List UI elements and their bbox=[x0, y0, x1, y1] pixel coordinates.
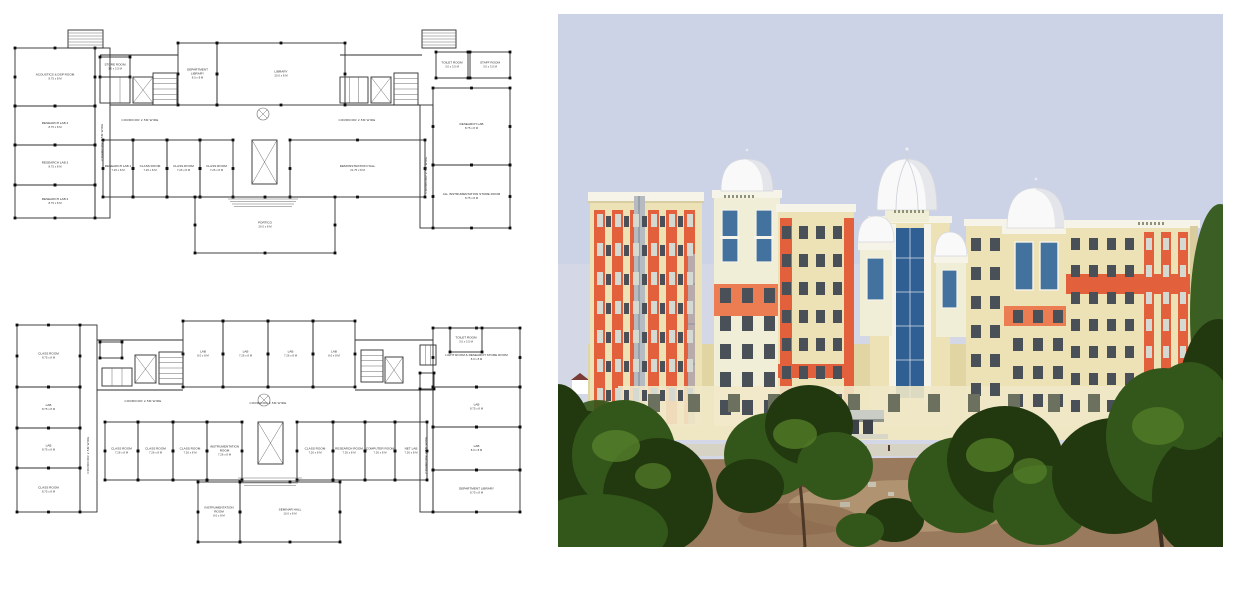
column bbox=[433, 388, 436, 391]
column bbox=[216, 42, 219, 45]
column bbox=[102, 196, 105, 199]
column bbox=[354, 386, 357, 389]
window bbox=[1150, 222, 1152, 225]
window bbox=[1107, 346, 1116, 358]
plan-text: 7.26 x 8 M bbox=[149, 450, 163, 454]
window bbox=[816, 366, 825, 379]
window bbox=[764, 372, 775, 387]
toilets bbox=[340, 77, 368, 103]
window bbox=[678, 390, 683, 401]
plan-text: 8.0 x 8 M bbox=[213, 513, 225, 517]
window bbox=[898, 210, 900, 213]
plan-text: 21.75 x 8 M bbox=[350, 168, 365, 172]
column bbox=[509, 125, 512, 128]
window bbox=[1162, 222, 1164, 225]
column bbox=[94, 144, 97, 147]
window bbox=[633, 330, 639, 343]
column bbox=[470, 227, 473, 230]
window bbox=[624, 332, 629, 343]
plan-text: 3.0 x 3.5 M bbox=[108, 66, 123, 70]
column bbox=[199, 167, 202, 170]
column bbox=[475, 469, 478, 472]
window bbox=[990, 383, 1000, 396]
column bbox=[435, 51, 438, 54]
window bbox=[1107, 319, 1116, 331]
plan-text: 3.0 x 3.5 M bbox=[459, 339, 474, 343]
column bbox=[47, 386, 50, 389]
window bbox=[1053, 310, 1063, 323]
column bbox=[137, 479, 140, 482]
window bbox=[1125, 346, 1134, 358]
plan-text: 8.0 x 8 M bbox=[471, 448, 483, 452]
column bbox=[394, 421, 397, 424]
column bbox=[470, 164, 473, 167]
plan-text: CORRIDOR 2.5M WIDE bbox=[424, 156, 428, 193]
column bbox=[197, 481, 200, 484]
window bbox=[660, 332, 665, 343]
column bbox=[312, 353, 315, 356]
column bbox=[334, 224, 337, 227]
column bbox=[296, 450, 299, 453]
window bbox=[728, 394, 740, 412]
window bbox=[1071, 346, 1080, 358]
column bbox=[432, 195, 435, 198]
column bbox=[432, 125, 435, 128]
window bbox=[1125, 238, 1134, 250]
window bbox=[669, 214, 675, 227]
column bbox=[356, 139, 359, 142]
column bbox=[470, 87, 473, 90]
column bbox=[481, 351, 484, 354]
window bbox=[720, 288, 731, 303]
plan-text: 8.75 x 8 M bbox=[48, 125, 62, 129]
column bbox=[94, 105, 97, 108]
window bbox=[615, 243, 621, 256]
window bbox=[1033, 338, 1043, 351]
window bbox=[990, 267, 1000, 280]
window bbox=[606, 274, 611, 285]
column bbox=[79, 427, 82, 430]
plan-text: 7.26 x 8 M bbox=[115, 450, 129, 454]
column bbox=[222, 353, 225, 356]
column bbox=[334, 252, 337, 255]
window bbox=[660, 216, 665, 227]
column bbox=[121, 357, 124, 360]
column bbox=[54, 47, 57, 50]
column bbox=[432, 327, 435, 330]
column bbox=[99, 341, 102, 344]
column bbox=[435, 77, 438, 80]
column bbox=[509, 227, 512, 230]
plan-text: CORRIDOR 2.5M WIDE bbox=[86, 436, 90, 473]
column bbox=[509, 77, 512, 80]
window bbox=[782, 282, 791, 295]
column bbox=[519, 356, 522, 359]
window bbox=[816, 310, 825, 323]
window bbox=[606, 216, 611, 227]
plan-text: CORRIDOR 2.5M WIDE bbox=[424, 436, 428, 473]
column bbox=[79, 355, 82, 358]
column bbox=[426, 479, 429, 482]
window bbox=[833, 254, 842, 267]
window bbox=[1146, 222, 1148, 225]
window bbox=[1125, 292, 1134, 304]
window bbox=[1180, 265, 1186, 277]
column bbox=[194, 224, 197, 227]
column bbox=[132, 196, 135, 199]
plan-text: CORRIDOR 2.5M WIDE bbox=[249, 401, 286, 405]
window bbox=[669, 272, 675, 285]
plan-text: 3.0 x 3.5 M bbox=[445, 64, 460, 68]
column bbox=[79, 467, 82, 470]
window bbox=[687, 330, 693, 343]
column bbox=[172, 450, 175, 453]
window bbox=[1180, 238, 1186, 250]
plan-text: 7.26 x 8 M bbox=[239, 353, 253, 357]
window bbox=[615, 359, 621, 372]
plan-text: 8.75 x 8 M bbox=[42, 355, 56, 359]
plan-text: 8.75 x 8 M bbox=[42, 489, 56, 493]
window bbox=[633, 214, 639, 227]
column bbox=[16, 324, 19, 327]
window bbox=[748, 195, 750, 198]
column bbox=[432, 426, 435, 429]
window bbox=[1125, 319, 1134, 331]
column bbox=[14, 184, 17, 187]
plan-text: 20.0 x 8 M bbox=[258, 224, 272, 228]
column bbox=[16, 355, 19, 358]
window bbox=[990, 238, 1000, 251]
window bbox=[651, 330, 657, 343]
window bbox=[816, 226, 825, 239]
window bbox=[669, 301, 675, 314]
room bbox=[100, 342, 122, 358]
column bbox=[344, 42, 347, 45]
plan-text: 7.26 x 8 M bbox=[284, 353, 298, 357]
plan-text: 7.26 x 8 M bbox=[183, 450, 197, 454]
window bbox=[633, 272, 639, 285]
column bbox=[519, 469, 522, 472]
window bbox=[597, 214, 603, 227]
column bbox=[206, 421, 209, 424]
column bbox=[509, 164, 512, 167]
column bbox=[197, 541, 200, 544]
window bbox=[742, 372, 753, 387]
window bbox=[678, 332, 683, 343]
window bbox=[606, 245, 611, 256]
window bbox=[764, 344, 775, 359]
column bbox=[199, 139, 202, 142]
window bbox=[660, 274, 665, 285]
window bbox=[651, 359, 657, 372]
window bbox=[1071, 265, 1080, 277]
window bbox=[1146, 265, 1152, 277]
column bbox=[14, 47, 17, 50]
window bbox=[669, 359, 675, 372]
window bbox=[799, 310, 808, 323]
first-floor-plan: ACOUSTICS & DSP ROOM8.75 x 8 MRESEARCH L… bbox=[14, 30, 512, 254]
column bbox=[129, 56, 132, 59]
column bbox=[394, 479, 397, 482]
column bbox=[296, 421, 299, 424]
plan-text: 8.0 x 8 M bbox=[328, 353, 340, 357]
window bbox=[906, 210, 908, 213]
plan-text: 7.26 x 8 M bbox=[111, 168, 125, 172]
window bbox=[752, 195, 754, 198]
column bbox=[16, 386, 19, 389]
plan-text: 8.0 x 8 M bbox=[197, 353, 209, 357]
column bbox=[267, 353, 270, 356]
window bbox=[1071, 238, 1080, 250]
column bbox=[194, 196, 197, 199]
column bbox=[334, 196, 337, 199]
window bbox=[642, 332, 647, 343]
window bbox=[1107, 265, 1116, 277]
window bbox=[615, 272, 621, 285]
column bbox=[432, 87, 435, 90]
window bbox=[597, 359, 603, 372]
window bbox=[1071, 319, 1080, 331]
window bbox=[669, 388, 675, 401]
window bbox=[833, 366, 842, 379]
window bbox=[678, 303, 683, 314]
window bbox=[990, 296, 1000, 309]
window bbox=[669, 330, 675, 343]
column bbox=[54, 144, 57, 147]
window bbox=[624, 361, 629, 372]
column bbox=[232, 139, 235, 142]
window bbox=[651, 214, 657, 227]
window bbox=[888, 394, 900, 412]
column bbox=[289, 139, 292, 142]
column bbox=[475, 511, 478, 514]
window bbox=[1146, 238, 1152, 250]
window bbox=[597, 330, 603, 343]
window bbox=[624, 303, 629, 314]
plan-text: 8.75 x 8 M bbox=[48, 201, 62, 205]
window bbox=[624, 274, 629, 285]
window bbox=[615, 214, 621, 227]
window bbox=[1033, 366, 1043, 379]
window bbox=[922, 210, 924, 213]
column bbox=[182, 386, 185, 389]
window bbox=[1180, 319, 1186, 331]
column bbox=[289, 167, 292, 170]
column bbox=[104, 450, 107, 453]
window bbox=[971, 325, 981, 338]
column bbox=[332, 479, 335, 482]
window bbox=[742, 288, 753, 303]
window bbox=[799, 366, 808, 379]
column bbox=[354, 353, 357, 356]
plan-text: 8.75 x 8 M bbox=[42, 407, 56, 411]
column bbox=[432, 469, 435, 472]
column bbox=[172, 421, 175, 424]
window bbox=[651, 243, 657, 256]
window bbox=[606, 361, 611, 372]
column bbox=[339, 481, 342, 484]
window bbox=[1146, 319, 1152, 331]
window bbox=[968, 394, 980, 412]
column bbox=[264, 252, 267, 255]
column bbox=[339, 541, 342, 544]
window bbox=[615, 388, 621, 401]
column bbox=[469, 77, 472, 80]
window bbox=[816, 254, 825, 267]
column bbox=[339, 511, 342, 514]
column bbox=[79, 324, 82, 327]
column bbox=[177, 42, 180, 45]
window bbox=[971, 267, 981, 280]
window bbox=[1107, 238, 1116, 250]
window bbox=[990, 354, 1000, 367]
column bbox=[312, 320, 315, 323]
window bbox=[687, 214, 693, 227]
column bbox=[47, 324, 50, 327]
column bbox=[239, 541, 242, 544]
window bbox=[1138, 222, 1140, 225]
window bbox=[1163, 319, 1169, 331]
column bbox=[79, 511, 82, 514]
window bbox=[1089, 373, 1098, 385]
column bbox=[166, 167, 169, 170]
window bbox=[724, 195, 726, 198]
column bbox=[121, 341, 124, 344]
column bbox=[509, 195, 512, 198]
window bbox=[687, 243, 693, 256]
window bbox=[633, 388, 639, 401]
column bbox=[197, 511, 200, 514]
window bbox=[1163, 292, 1169, 304]
toilets bbox=[100, 77, 130, 103]
window bbox=[1013, 338, 1023, 351]
window bbox=[624, 245, 629, 256]
column bbox=[239, 481, 242, 484]
column bbox=[419, 388, 422, 391]
window bbox=[1089, 346, 1098, 358]
window bbox=[764, 288, 775, 303]
window bbox=[633, 243, 639, 256]
window bbox=[1107, 373, 1116, 385]
column bbox=[14, 144, 17, 147]
column bbox=[519, 511, 522, 514]
column bbox=[332, 450, 335, 453]
plan-text: 3.0 x 3.5 M bbox=[483, 64, 498, 68]
column bbox=[432, 227, 435, 230]
window bbox=[651, 301, 657, 314]
column bbox=[137, 450, 140, 453]
window bbox=[1048, 394, 1060, 412]
column bbox=[47, 467, 50, 470]
column bbox=[449, 327, 452, 330]
window bbox=[1089, 292, 1098, 304]
ground-floor-plan: CLASS ROOM8.75 x 8 MLAB8.75 x 8 MLAB8.75… bbox=[16, 320, 522, 544]
window bbox=[833, 226, 842, 239]
column bbox=[206, 450, 209, 453]
window bbox=[615, 330, 621, 343]
column bbox=[419, 372, 422, 375]
window bbox=[910, 210, 912, 213]
window bbox=[1071, 400, 1080, 412]
window bbox=[642, 390, 647, 401]
column bbox=[394, 450, 397, 453]
column bbox=[267, 386, 270, 389]
column bbox=[216, 73, 219, 76]
window bbox=[1180, 292, 1186, 304]
column bbox=[280, 42, 283, 45]
window bbox=[782, 226, 791, 239]
window bbox=[651, 272, 657, 285]
column bbox=[99, 56, 102, 59]
window bbox=[1089, 238, 1098, 250]
plan-text: 7.26 x 8 M bbox=[210, 168, 224, 172]
column bbox=[280, 104, 283, 107]
column bbox=[426, 421, 429, 424]
window bbox=[1154, 222, 1156, 225]
column bbox=[47, 511, 50, 514]
plan-text: 8.75 x 8 M bbox=[465, 196, 479, 200]
column bbox=[99, 357, 102, 360]
window bbox=[1013, 310, 1023, 323]
plan-text: CORRIDOR 2.5M WIDE bbox=[121, 118, 158, 122]
column bbox=[354, 320, 357, 323]
column bbox=[519, 327, 522, 330]
column bbox=[104, 479, 107, 482]
window bbox=[728, 195, 730, 198]
window bbox=[742, 400, 753, 415]
column bbox=[344, 73, 347, 76]
plan-text: 8.75 x 8 M bbox=[470, 406, 484, 410]
window bbox=[688, 394, 700, 412]
column bbox=[475, 386, 478, 389]
window bbox=[833, 338, 842, 351]
window bbox=[597, 243, 603, 256]
window bbox=[1033, 310, 1043, 323]
window bbox=[742, 316, 753, 331]
corridor bbox=[80, 325, 97, 512]
window bbox=[624, 216, 629, 227]
toilets bbox=[420, 345, 436, 365]
toilets bbox=[102, 368, 132, 386]
column bbox=[54, 217, 57, 220]
column bbox=[79, 386, 82, 389]
plan-text: 8.75 x 8 M bbox=[48, 164, 62, 168]
column bbox=[166, 196, 169, 199]
column bbox=[14, 105, 17, 108]
column bbox=[14, 217, 17, 220]
plan-text: 8.0 x 8 M bbox=[192, 75, 204, 79]
window bbox=[1089, 265, 1098, 277]
window bbox=[833, 282, 842, 295]
window bbox=[742, 344, 753, 359]
column bbox=[194, 252, 197, 255]
column bbox=[16, 511, 19, 514]
window bbox=[720, 344, 731, 359]
plan-text: CORRIDOR 2.5M WIDE bbox=[338, 118, 375, 122]
column bbox=[222, 386, 225, 389]
plan-text: 7.26 x 8 M bbox=[218, 452, 232, 456]
window bbox=[1158, 222, 1160, 225]
column bbox=[137, 421, 140, 424]
column bbox=[509, 87, 512, 90]
window bbox=[660, 390, 665, 401]
column bbox=[94, 184, 97, 187]
window bbox=[971, 354, 981, 367]
plan-text: 8.75 x 8 M bbox=[42, 447, 56, 451]
plan-text: 7.26 x 8 M bbox=[308, 450, 322, 454]
column bbox=[94, 76, 97, 79]
window bbox=[1089, 319, 1098, 331]
